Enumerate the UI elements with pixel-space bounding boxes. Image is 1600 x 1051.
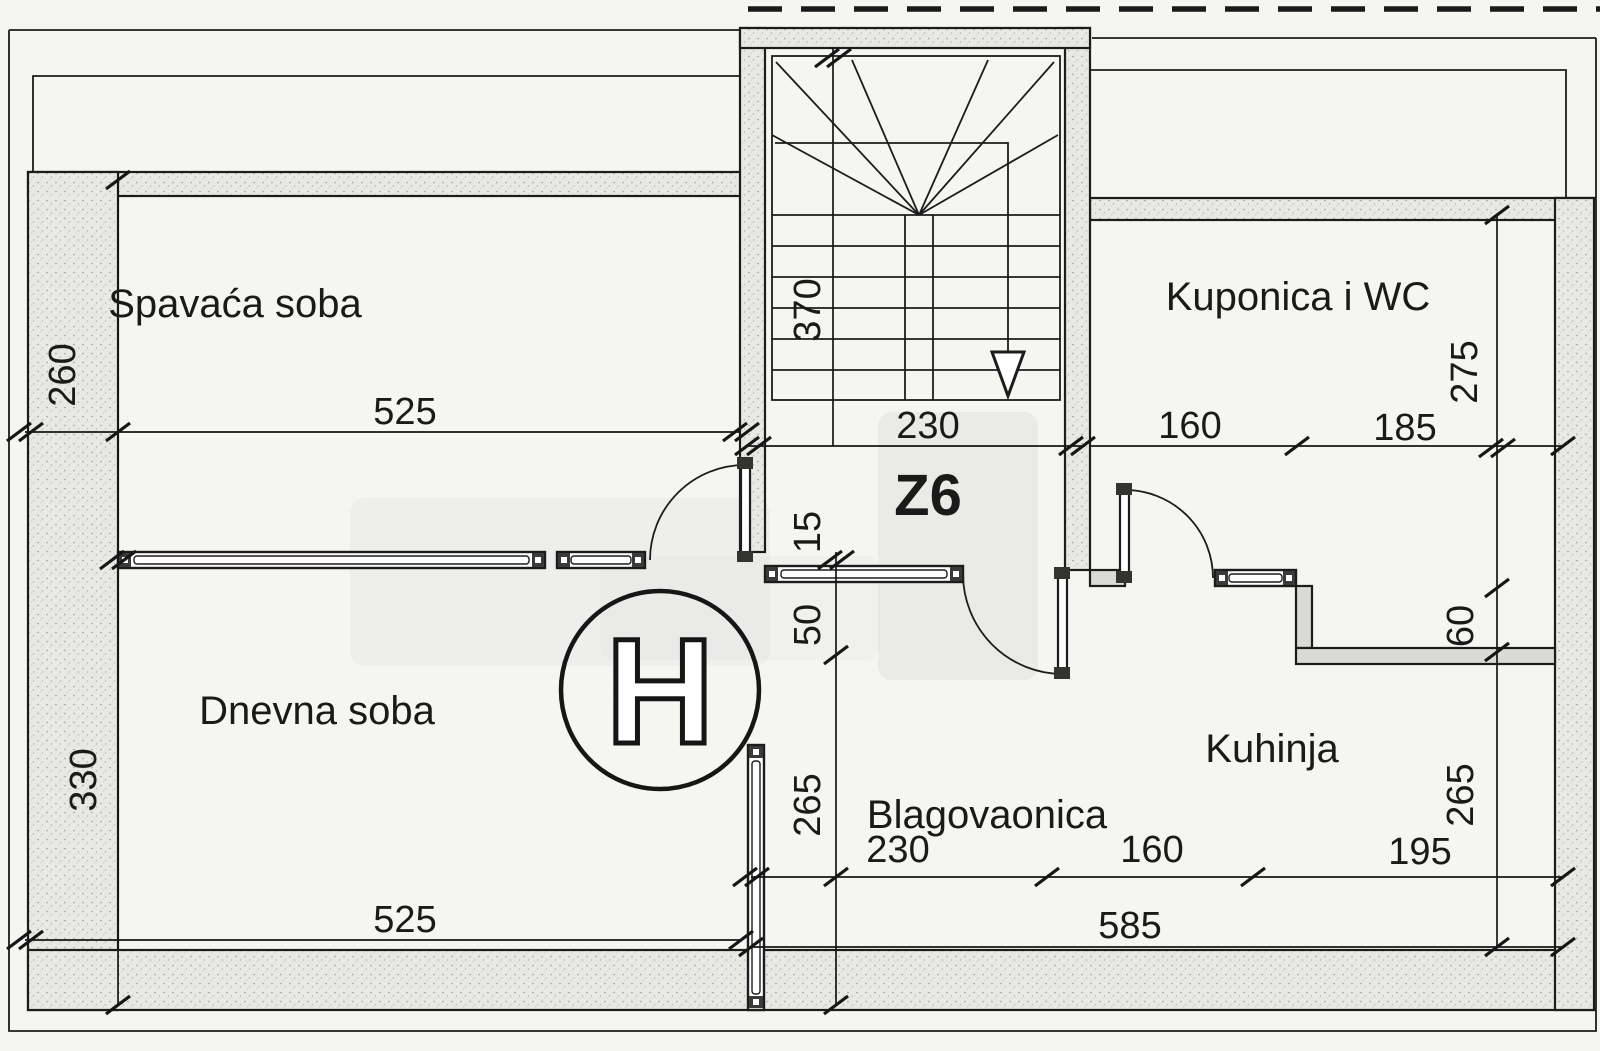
dim-kitchen-depth: 265 <box>1440 763 1482 826</box>
partition-bedroom-living-b <box>557 552 645 568</box>
dim-dining-depth: 265 <box>787 773 829 836</box>
partition-bath-bottom <box>1215 570 1296 586</box>
dim-bedroom-depth: 260 <box>42 343 84 406</box>
stair-walk-line <box>775 143 1024 396</box>
dim-kitchen-notch: 60 <box>1440 605 1482 647</box>
partition-hall-south <box>765 566 963 582</box>
door-bathroom <box>1116 483 1213 583</box>
room-label-dining: Blagovaonica <box>867 793 1108 837</box>
room-label-bedroom: Spavaća soba <box>108 282 362 326</box>
dim-bath-depth: 275 <box>1444 340 1486 403</box>
wall-left <box>28 172 118 1010</box>
dim-stair-width: 230 <box>896 405 959 447</box>
stair-down-arrow <box>992 352 1024 396</box>
wall-stair-right <box>1065 28 1090 570</box>
stamp-letter: H <box>606 607 714 775</box>
dim-bath-seg-left: 160 <box>1158 405 1221 447</box>
dim-bath-seg-right: 185 <box>1373 407 1436 449</box>
dim-living-width: 525 <box>373 899 436 941</box>
wall-kitchen-top <box>1296 648 1555 664</box>
dim-bottom-total: 585 <box>1098 905 1161 947</box>
dim-living-depth: 330 <box>63 748 105 811</box>
stamp: H <box>561 591 759 789</box>
floor-plan-svg: 525 260 370 230 160 185 275 15 50 330 26… <box>0 0 1600 1051</box>
wall-kitchen-notch <box>1296 586 1312 648</box>
wall-top-right <box>1090 198 1594 220</box>
room-label-hall-code: Z6 <box>894 463 962 528</box>
dim-kitchen-seg: 160 <box>1120 829 1183 871</box>
wall-top-left <box>28 172 745 196</box>
stairs <box>772 56 1060 400</box>
dim-stair-run: 370 <box>787 278 829 341</box>
wall-stair-top <box>740 28 1090 48</box>
room-label-kitchen: Kuhinja <box>1205 727 1339 771</box>
dim-wall-thickness: 15 <box>787 511 829 553</box>
dim-bedroom-width: 525 <box>373 391 436 433</box>
stair-winder-fan <box>772 60 1058 215</box>
dim-hall-offset: 50 <box>787 604 829 646</box>
floor-plan-page: 525 260 370 230 160 185 275 15 50 330 26… <box>0 0 1600 1051</box>
dim-kitchen-right-seg: 195 <box>1388 831 1451 873</box>
wall-right <box>1555 198 1594 1010</box>
room-label-living: Dnevna soba <box>199 689 435 733</box>
wall-bottom <box>28 950 1594 1010</box>
room-label-bathroom: Kuponica i WC <box>1166 275 1431 319</box>
partition-bedroom-living-a <box>118 552 545 568</box>
